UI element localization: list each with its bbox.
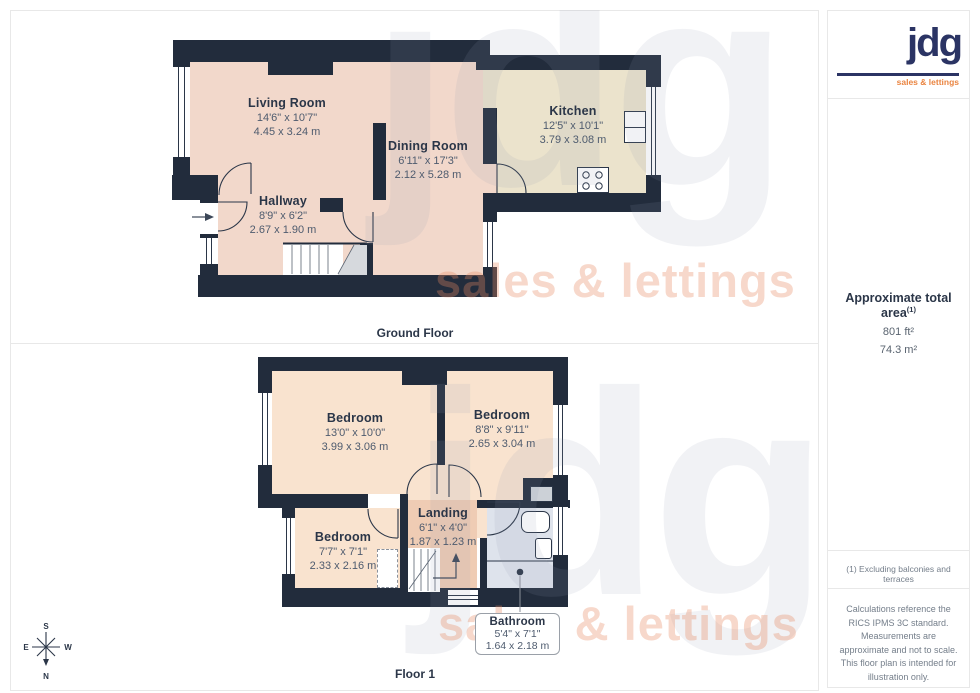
window xyxy=(200,238,218,264)
area-title-text: Approximate total area xyxy=(845,291,951,320)
bathroom-callout: Bathroom 5'4" x 7'1" 1.64 x 2.18 m xyxy=(475,613,560,655)
wall xyxy=(320,198,343,212)
room-label-living-room: Living Room 14'6" x 10'7" 4.45 x 3.24 m xyxy=(248,96,326,138)
window xyxy=(173,67,190,157)
room-name: Hallway xyxy=(250,194,317,209)
landing-doorway-area xyxy=(408,465,477,500)
cupboard xyxy=(530,486,553,502)
room-label-landing: Landing 6'1" x 4'0" 1.87 x 1.23 m xyxy=(410,506,477,548)
room-dims-m: 1.64 x 2.18 m xyxy=(476,641,559,653)
logo-tagline: sales & lettings xyxy=(897,77,959,87)
wall-living-dining xyxy=(373,123,386,200)
wardrobe xyxy=(377,549,398,588)
kitchen-opening xyxy=(483,70,497,108)
room-label-bedroom-1: Bedroom 13'0" x 10'0" 3.99 x 3.06 m xyxy=(322,411,389,453)
logo-underline xyxy=(837,73,959,76)
wall xyxy=(172,175,218,200)
window xyxy=(553,507,568,555)
room-dims-m: 4.45 x 3.24 m xyxy=(248,126,326,139)
wall xyxy=(523,488,530,500)
area-title: Approximate total area(1) xyxy=(828,99,969,320)
wall-chimney xyxy=(268,62,333,75)
floorplan-page: jdg sales & lettings jdg sales & letting… xyxy=(0,0,980,693)
compass-north-arrow xyxy=(43,659,49,666)
ground-floor-caption: Ground Floor xyxy=(377,326,454,340)
room-label-kitchen: Kitchen 12'5" x 10'1" 3.79 x 3.08 m xyxy=(540,104,607,146)
area-value-m: 74.3 m² xyxy=(828,344,969,356)
stove-icon xyxy=(577,167,609,193)
bathtub-icon xyxy=(521,511,550,533)
room-dims-m: 2.67 x 1.90 m xyxy=(250,224,317,237)
disclaimer-section: Calculations reference the RICS IPMS 3C … xyxy=(828,589,969,693)
compass-label-e: E xyxy=(23,643,29,652)
room-name: Landing xyxy=(410,506,477,521)
sidebar: jdg sales & lettings Approximate total a… xyxy=(827,10,970,688)
room-dims-m: 2.12 x 5.28 m xyxy=(388,169,468,182)
room-dims-ft: 8'8" x 9'11" xyxy=(469,424,536,437)
room-name: Bedroom xyxy=(322,411,389,426)
wall xyxy=(553,357,568,607)
bathroom-doorway-floor xyxy=(477,508,487,538)
room-dims-m: 3.99 x 3.06 m xyxy=(322,441,389,454)
room-dims-ft: 14'6" x 10'7" xyxy=(248,112,326,125)
window xyxy=(448,590,478,605)
wall xyxy=(476,55,661,70)
room-name: Living Room xyxy=(248,96,326,111)
window xyxy=(483,222,497,267)
compass-label-s: S xyxy=(43,622,49,631)
logo: jdg sales & lettings xyxy=(828,11,969,99)
compass-icon: S N E W xyxy=(18,620,78,684)
kitchen-counter xyxy=(624,111,646,143)
room-dims-ft: 13'0" x 10'0" xyxy=(322,427,389,440)
room-dims-m: 2.65 x 3.04 m xyxy=(469,438,536,451)
window xyxy=(553,405,568,475)
room-label-bedroom-3: Bedroom 7'7" x 7'1" 2.33 x 2.16 m xyxy=(310,530,377,572)
room-dims-ft: 8'9" x 6'2" xyxy=(250,210,317,223)
room-dims-ft: 7'7" x 7'1" xyxy=(310,546,377,559)
wall xyxy=(483,193,497,222)
room-dims-m: 1.87 x 1.23 m xyxy=(410,536,477,549)
area-section: Approximate total area(1) 801 ft² 74.3 m… xyxy=(828,99,969,551)
wall xyxy=(483,108,497,164)
logo-jdg-text: jdg xyxy=(907,23,961,63)
room-label-bedroom-2: Bedroom 8'8" x 9'11" 2.65 x 3.04 m xyxy=(469,408,536,450)
stairs-treads-area xyxy=(283,244,343,275)
area-value-ft: 801 ft² xyxy=(828,326,969,338)
window xyxy=(646,87,661,175)
wall xyxy=(400,494,408,588)
compass-label-w: W xyxy=(64,643,72,652)
room-dims-m: 3.79 x 3.08 m xyxy=(540,134,607,147)
room-name: Bedroom xyxy=(469,408,536,423)
room-name: Kitchen xyxy=(540,104,607,119)
wall xyxy=(483,267,497,277)
kitchen-doorway-floor xyxy=(483,164,497,193)
wall xyxy=(497,193,661,212)
wall xyxy=(295,494,368,508)
area-superscript: (1) xyxy=(907,305,916,314)
disclaimer-text: Calculations reference the RICS IPMS 3C … xyxy=(837,603,960,684)
compass-label-n: N xyxy=(43,672,49,681)
counter-divider xyxy=(625,127,645,128)
window xyxy=(258,393,272,465)
room-dims-ft: 5'4" x 7'1" xyxy=(476,629,559,641)
wall xyxy=(173,40,490,62)
floor1-caption: Floor 1 xyxy=(395,667,435,681)
room-label-hallway: Hallway 8'9" x 6'2" 2.67 x 1.90 m xyxy=(250,194,317,236)
footnote: (1) Excluding balconies and terraces xyxy=(828,551,969,589)
stairs-treads-area xyxy=(408,548,440,592)
entrance-opening xyxy=(200,203,218,234)
room-name: Bedroom xyxy=(310,530,377,545)
room-name: Dining Room xyxy=(388,139,468,154)
wall-stair-stub xyxy=(360,243,373,275)
sink-icon xyxy=(535,538,552,559)
room-label-dining-room: Dining Room 6'11" x 17'3" 2.12 x 5.28 m xyxy=(388,139,468,181)
window xyxy=(282,518,295,574)
room-dims-ft: 6'11" x 17'3" xyxy=(388,155,468,168)
wall xyxy=(480,538,487,592)
room-dims-ft: 6'1" x 4'0" xyxy=(410,522,477,535)
wall-bedroom-divider xyxy=(437,371,445,465)
room-dims-m: 2.33 x 2.16 m xyxy=(310,560,377,573)
wall xyxy=(198,275,497,297)
room-dims-ft: 12'5" x 10'1" xyxy=(540,120,607,133)
